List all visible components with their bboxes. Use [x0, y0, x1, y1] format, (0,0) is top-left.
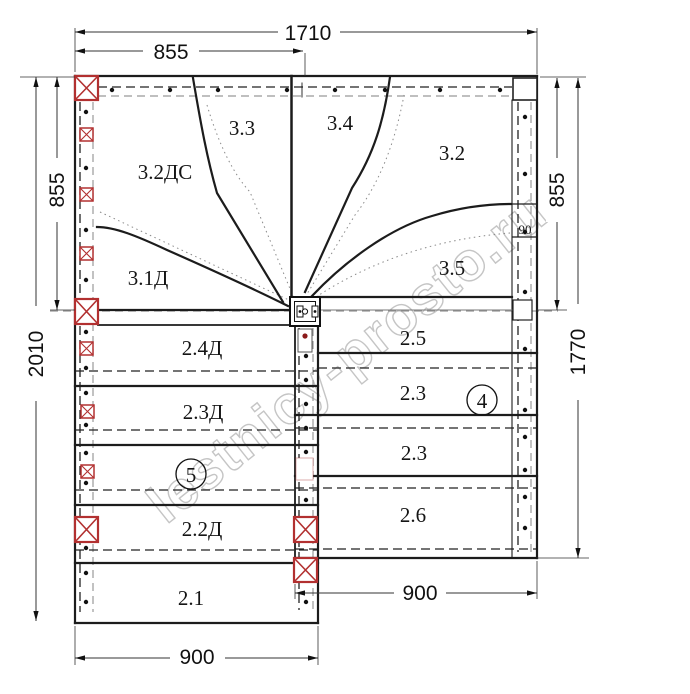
step-label: 3.4	[327, 111, 354, 135]
step-label: 3.1Д	[128, 266, 169, 290]
corner-post	[513, 78, 537, 100]
step-label: 3.2	[439, 141, 465, 165]
step-label: 2.3	[401, 441, 427, 465]
dim-right-upper-height: 855	[546, 172, 569, 207]
flight-number-text: 5	[186, 463, 197, 487]
dim-flight-left-width: 900	[179, 646, 214, 669]
post-marker	[75, 299, 98, 324]
step-label: 2.1	[178, 586, 204, 610]
step-label: 2.5	[400, 326, 426, 350]
step-label: 2.3Д	[183, 400, 224, 424]
post-marker	[294, 558, 317, 582]
step-label: 2.3	[400, 381, 426, 405]
dim-total-width: 1710	[285, 22, 332, 45]
dim-left-total-height: 2010	[25, 331, 48, 378]
dim-left-upper-height: 855	[46, 172, 69, 207]
step-label: 3.5	[439, 256, 465, 280]
winder-boundary	[305, 77, 390, 292]
winder-boundary	[97, 227, 288, 306]
post-marker	[75, 76, 98, 100]
dim-stringer-width: 90	[519, 222, 532, 237]
stair-plan-page: lestnicy-prosto.ru	[0, 0, 690, 694]
post-marker-small	[80, 128, 93, 141]
step-label: 3.2ДС	[138, 160, 193, 184]
post-marker-small	[80, 247, 93, 260]
post-marker-small	[80, 188, 93, 201]
step-label: 3.3	[229, 116, 255, 140]
flight-number-text: 4	[477, 389, 488, 413]
dim-flight-right-width: 900	[402, 582, 437, 605]
step-label: 2.4Д	[182, 336, 223, 360]
red-dot	[302, 333, 307, 338]
stair-plan-drawing: lestnicy-prosto.ru	[0, 0, 690, 694]
post-marker-small	[81, 405, 94, 418]
post-marker	[75, 517, 98, 542]
post-marker	[294, 517, 317, 542]
landing-post	[513, 300, 532, 320]
post-marker-small	[81, 465, 94, 478]
walk-line	[307, 95, 404, 294]
dim-right-total-height: 1770	[567, 329, 590, 376]
step-label: 2.2Д	[182, 517, 223, 541]
post-outline-faint	[296, 458, 313, 480]
dim-half-width: 855	[153, 41, 188, 64]
flight-number-right: 4	[467, 385, 497, 415]
post-marker-small	[80, 342, 93, 355]
step-label: 2.6	[400, 503, 426, 527]
